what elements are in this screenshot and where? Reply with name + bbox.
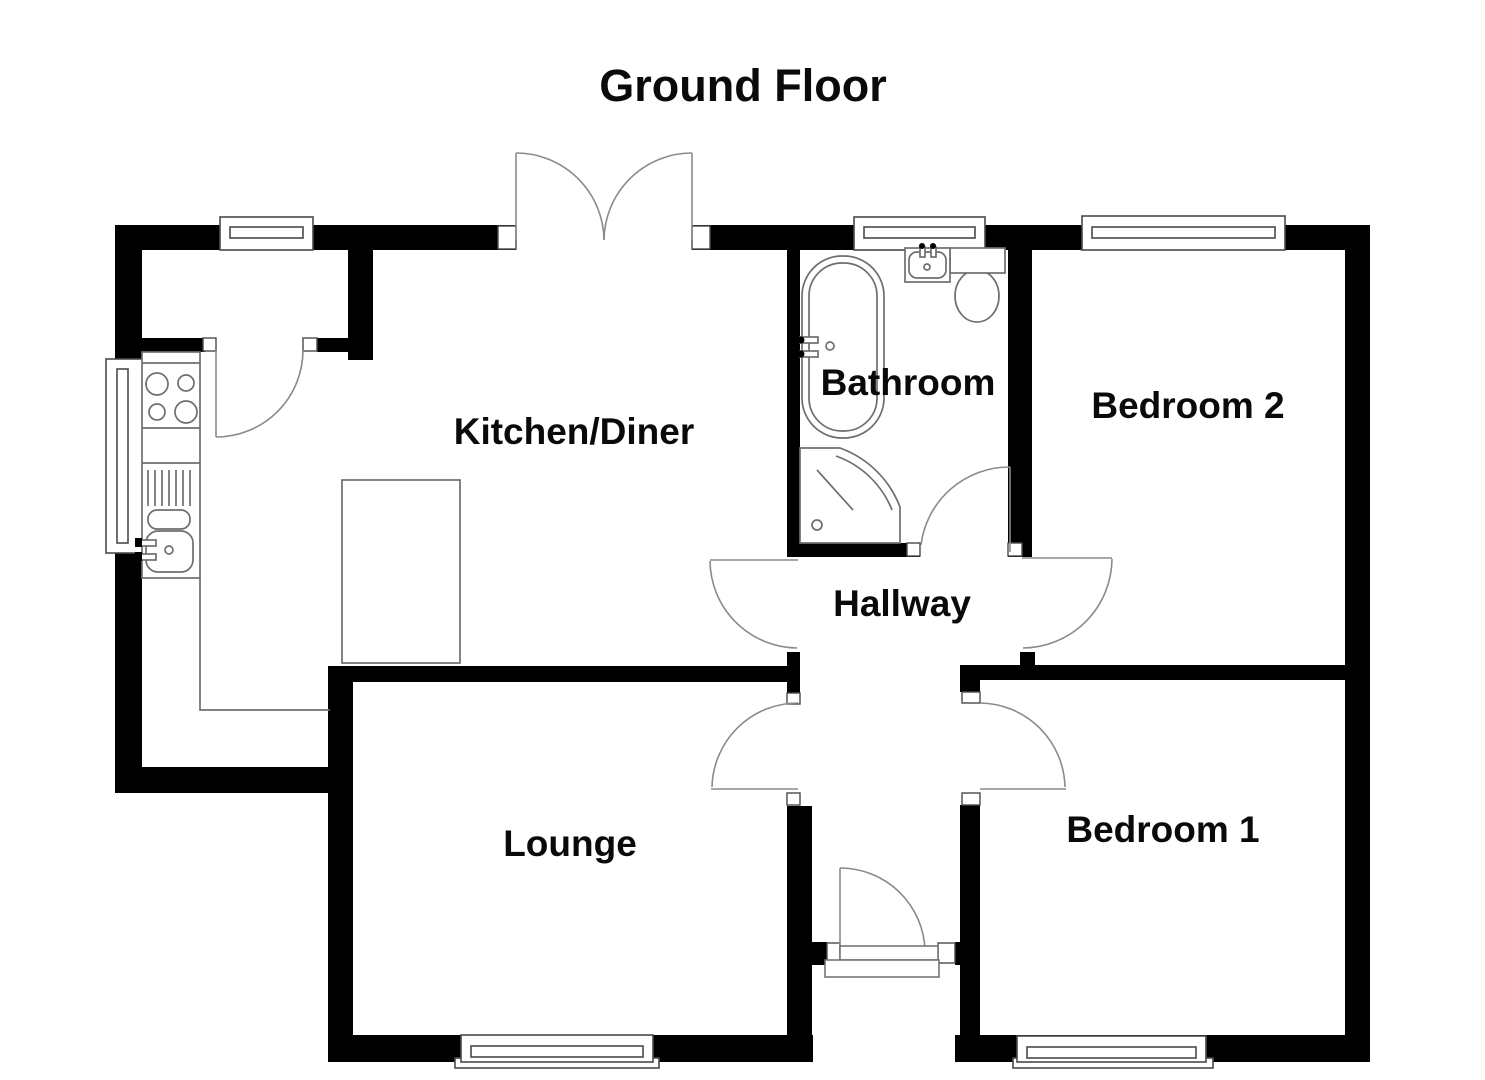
floor-plan-drawing: [0, 0, 1485, 1080]
wall-bathroom-left: [787, 250, 800, 545]
room-label-bathroom: Bathroom: [821, 362, 996, 404]
wall-frontdoor-left: [788, 942, 827, 965]
wall-right: [1345, 225, 1370, 1062]
windows: [106, 216, 1285, 1068]
toilet-icon: [950, 248, 1005, 322]
room-label-lounge: Lounge: [503, 823, 637, 865]
room-label-kitchen-diner: Kitchen/Diner: [454, 411, 695, 453]
wall-store-bottom-b: [317, 338, 348, 352]
shower-enclosure-icon: [800, 448, 900, 543]
kitchen-window-top-icon: [220, 217, 313, 250]
bedroom1-door-icon: [980, 703, 1066, 789]
lounge-window-icon: [455, 1035, 659, 1068]
wash-basin-icon: [905, 243, 950, 282]
wall-store-bottom-a: [142, 338, 205, 352]
room-label-hallway: Hallway: [833, 583, 971, 625]
bedroom1-window-icon: [1013, 1036, 1213, 1068]
room-label-bedroom-1: Bedroom 1: [1066, 809, 1259, 851]
bathroom-door-icon: [921, 467, 1010, 552]
wall-lounge-right: [787, 806, 812, 1062]
wall-bedroom1-left-top: [960, 665, 980, 692]
kitchen-fixtures: [135, 352, 460, 710]
patio-double-doors-icon: [516, 153, 692, 240]
wall-frontdoor-right: [955, 942, 980, 965]
wall-bathroom-bottom: [787, 543, 920, 557]
wall-bathroom-bedroom2: [1008, 250, 1032, 557]
page-title: Ground Floor: [599, 60, 886, 112]
room-label-bedroom-2: Bedroom 2: [1091, 385, 1284, 427]
wall-kitchen-bottom: [115, 767, 353, 793]
front-door-icon: [840, 868, 925, 952]
bath-icon: [798, 256, 885, 438]
bedroom2-window-icon: [1082, 216, 1285, 250]
wall-stub-bedroom2-door: [1020, 652, 1035, 665]
kitchen-hallway-door-icon: [710, 560, 798, 648]
wall-bedroom2-bottom: [960, 665, 1370, 680]
kitchen-window-left-icon: [106, 359, 143, 553]
wall-bedroom1-left-bottom: [960, 805, 980, 1062]
peninsula-unit-icon: [342, 480, 460, 663]
wall-lounge-top: [328, 666, 787, 682]
wall-stub-hallway-left: [787, 652, 800, 693]
floor-plan: Ground Floor Kitchen/Diner Bathroom Bedr…: [0, 0, 1485, 1080]
lounge-door-icon: [711, 703, 798, 789]
wall-store-right: [348, 250, 373, 360]
store-door-icon: [216, 350, 303, 437]
wall-lounge-left: [328, 666, 353, 1062]
wall-top-left: [115, 225, 516, 250]
bedroom2-door-icon: [1022, 558, 1112, 648]
drainer-icon: [148, 470, 190, 506]
front-door-threshold-icon: [825, 946, 939, 977]
